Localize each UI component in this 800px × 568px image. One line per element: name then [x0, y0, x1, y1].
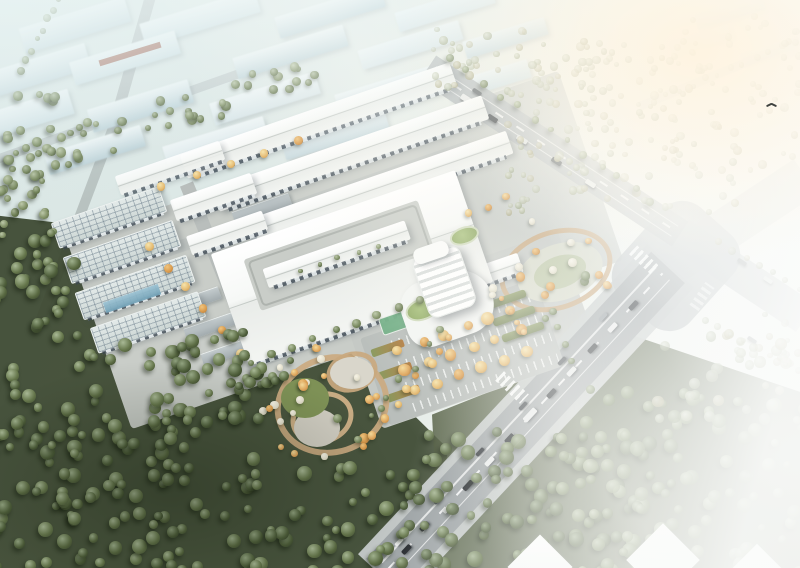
garden-trees [290, 410, 296, 416]
northeast-grove [766, 107, 773, 114]
southeast-forest [630, 441, 645, 456]
southeast-forest [503, 467, 513, 477]
northeast-grove [690, 17, 696, 23]
courtyard-trees [298, 269, 302, 273]
southwest-forest [349, 498, 357, 506]
southeast-forest [569, 532, 583, 546]
garden-trees [321, 453, 327, 459]
northwest-trees [28, 48, 36, 56]
campus-green-trees [395, 303, 404, 312]
southwest-forest [154, 512, 163, 521]
garden-edge-trees [502, 193, 509, 200]
southeast-forest [467, 511, 475, 519]
southeast-forest [591, 445, 604, 458]
boundary-grove [57, 133, 66, 142]
garden-trees [354, 374, 360, 380]
southeast-forest [441, 481, 452, 492]
northeast-grove [532, 185, 540, 193]
southwest-forest [128, 438, 140, 450]
southeast-forest [483, 498, 493, 508]
northeast-grove [625, 138, 633, 146]
southeast-forest [606, 480, 620, 494]
northeast-grove [695, 171, 703, 179]
northeast-grove [682, 29, 689, 36]
cross-road-trees [497, 94, 504, 101]
northeast-grove [607, 119, 614, 126]
parking-tree [464, 321, 474, 331]
avenue-street-trees [436, 326, 443, 333]
northeast-grove [506, 209, 512, 215]
hazy-road-trees [792, 39, 799, 46]
northeast-grove [607, 150, 614, 157]
southwest-forest [6, 443, 14, 451]
northeast-grove [676, 99, 682, 105]
northeast-grove [745, 25, 751, 31]
northeast-grove [587, 85, 595, 93]
northeast-grove [731, 199, 739, 207]
west-grove [46, 125, 55, 134]
southeast-forest [451, 432, 465, 446]
southwest-forest [244, 377, 255, 388]
northeast-grove [685, 84, 693, 92]
east-road-trees [728, 247, 736, 255]
northwest-trees [40, 28, 45, 33]
southeast-forest [525, 478, 538, 491]
northeast-grove [614, 127, 619, 132]
southwest-forest [33, 250, 41, 258]
northeast-grove [432, 72, 440, 80]
southwest-forest [117, 439, 127, 449]
northeast-grove [493, 51, 499, 57]
boundary-grove [32, 137, 42, 147]
southwest-forest [38, 522, 53, 537]
garden-trees [585, 238, 592, 245]
southwest-forest [287, 357, 294, 364]
garden-trees [317, 355, 324, 362]
southeast-forest [701, 515, 712, 526]
southeast-forest [527, 515, 536, 524]
northeast-grove [725, 33, 732, 40]
southeast-forest [421, 549, 432, 560]
southeast-forest [461, 445, 476, 460]
boundary-grove [156, 96, 166, 106]
northwest-trees [56, 0, 61, 2]
northeast-grove [580, 38, 587, 45]
southwest-forest [409, 481, 422, 494]
hedge-autumn-dots [509, 309, 514, 314]
southwest-forest [185, 334, 198, 347]
northeast-grove [596, 40, 603, 47]
southwest-forest [130, 553, 142, 565]
southwest-forest [108, 419, 122, 433]
northeast-grove [780, 103, 789, 112]
northeast-grove [710, 81, 715, 86]
boundary-grove [310, 71, 318, 79]
southeast-forest [681, 411, 692, 422]
southwest-forest [74, 361, 85, 372]
southeast-forest [754, 356, 765, 367]
southeast-forest [580, 416, 593, 429]
southwest-forest [322, 516, 332, 526]
northeast-grove [562, 54, 570, 62]
west-grove [4, 195, 11, 202]
northeast-grove [550, 62, 558, 70]
northeast-grove [651, 113, 659, 121]
southwest-forest [174, 374, 186, 386]
east-grove [766, 333, 773, 340]
boundary-grove [285, 85, 294, 94]
northeast-grove [781, 40, 789, 48]
east-grove [762, 312, 767, 317]
southwest-forest [398, 482, 408, 492]
northeast-grove [751, 13, 758, 20]
boundary-grove [93, 121, 99, 127]
southeast-forest [583, 459, 597, 473]
garden-trees [567, 239, 575, 247]
garden-trees [568, 258, 577, 267]
southwest-forest [151, 558, 163, 568]
northeast-grove [466, 59, 472, 65]
northeast-grove [674, 44, 680, 50]
southeast-forest [783, 461, 792, 470]
northeast-grove [548, 77, 555, 84]
southwest-forest [400, 501, 408, 509]
northwest-trees [17, 67, 25, 75]
northeast-grove [674, 159, 681, 166]
southwest-forest [190, 498, 203, 511]
east-road-trees [702, 317, 709, 324]
southwest-forest [32, 318, 44, 330]
west-grove [13, 91, 22, 100]
southwest-forest [238, 328, 248, 338]
southeast-forest [711, 363, 723, 375]
northeast-grove [505, 172, 512, 179]
southwest-forest [239, 350, 250, 361]
west-grove [39, 210, 49, 220]
northeast-grove [647, 56, 655, 64]
northeast-grove [564, 125, 572, 133]
southwest-forest [67, 257, 81, 271]
northeast-grove [748, 96, 754, 102]
campus-green-trees [372, 311, 380, 319]
parking-edge-trees [549, 308, 556, 315]
parking-tree [454, 369, 464, 379]
southeast-forest [673, 453, 683, 463]
southwest-forest [361, 488, 370, 497]
southeast-forest [793, 416, 800, 424]
northeast-grove [579, 84, 585, 90]
garden-plaza [330, 357, 374, 389]
southwest-forest [192, 561, 204, 568]
southwest-forest [38, 421, 49, 432]
boundary-grove [47, 147, 55, 155]
avenue-street-trees [446, 334, 452, 340]
southeast-forest [491, 475, 500, 484]
southwest-forest [150, 392, 164, 406]
avenue-street-trees [412, 372, 419, 379]
southwest-forest [112, 488, 124, 500]
northeast-grove [650, 91, 659, 100]
northeast-grove [733, 146, 742, 155]
cross-road-trees [646, 198, 654, 206]
southwest-forest [179, 475, 190, 486]
southwest-forest [297, 466, 312, 481]
northeast-grove [792, 28, 800, 36]
northeast-grove [516, 44, 523, 51]
northeast-grove [693, 166, 698, 171]
southeast-forest [685, 391, 695, 401]
southeast-forest [720, 455, 733, 468]
southwest-forest [177, 359, 190, 372]
southeast-forest [775, 338, 787, 350]
northeast-grove [693, 41, 698, 46]
southwest-forest [54, 308, 63, 317]
southwest-forest [164, 432, 177, 445]
northeast-grove [676, 151, 683, 158]
southeast-forest [704, 411, 715, 422]
garden-trees [313, 345, 321, 353]
southeast-forest [510, 515, 524, 529]
northeast-grove [603, 58, 610, 65]
northeast-grove [719, 192, 728, 201]
northeast-grove [439, 36, 447, 44]
west-grove [56, 147, 67, 158]
southwest-forest [250, 367, 261, 378]
boundary-grove [117, 117, 126, 126]
northeast-grove [620, 173, 629, 182]
boundary-grove [270, 68, 278, 76]
northeast-grove [730, 180, 736, 186]
northeast-grove [651, 65, 658, 72]
northeast-grove [618, 93, 624, 99]
campus-autumn-trees [193, 171, 201, 179]
northeast-grove [671, 53, 678, 60]
parking-tree [475, 361, 487, 373]
southwest-forest [420, 521, 429, 530]
northeast-grove [659, 44, 665, 50]
northeast-grove [718, 166, 726, 174]
parking-tree [469, 342, 480, 353]
northeast-grove [729, 158, 737, 166]
northeast-grove [514, 53, 520, 59]
southwest-forest [202, 363, 213, 374]
southwest-forest [279, 371, 289, 381]
southeast-forest [422, 455, 431, 464]
southeast-forest [660, 341, 670, 351]
cross-road-trees [462, 66, 469, 73]
southwest-forest [247, 452, 260, 465]
campus-autumn-trees [260, 149, 269, 158]
southwest-forest [133, 507, 146, 520]
northeast-grove [722, 86, 729, 93]
northeast-grove [584, 44, 590, 50]
southwest-forest [342, 551, 355, 564]
boundary-grove [35, 150, 42, 157]
northeast-grove [504, 121, 512, 129]
southwest-forest [177, 342, 187, 352]
garden-trees [549, 266, 557, 274]
southwest-forest [251, 469, 261, 479]
northeast-grove [661, 155, 667, 161]
southeast-forest [778, 535, 787, 544]
southwest-forest [253, 413, 264, 424]
avenue-street-trees [354, 436, 361, 443]
west-grove [47, 229, 55, 237]
northeast-grove [636, 109, 643, 116]
southwest-forest [103, 480, 115, 492]
southwest-forest [68, 414, 80, 426]
boundary-grove [166, 107, 174, 115]
boundary-grove [114, 127, 121, 134]
southwest-forest [91, 397, 99, 405]
northwest-trees [50, 7, 57, 14]
northeast-grove [555, 74, 561, 80]
southwest-forest [200, 509, 210, 519]
west-grove [3, 134, 12, 143]
warehouse-roof [462, 17, 549, 59]
parking-tree [521, 346, 532, 357]
southwest-forest [407, 469, 420, 482]
southwest-forest [368, 551, 383, 566]
southwest-forest [118, 338, 132, 352]
northeast-grove [541, 42, 546, 47]
campus-green-trees [267, 350, 276, 359]
southwest-forest [163, 393, 173, 403]
southeast-forest [738, 431, 752, 445]
parking-tree [481, 312, 494, 325]
east-grove [781, 319, 789, 327]
southeast-forest [446, 503, 459, 516]
northeast-grove [600, 112, 608, 120]
southwest-forest [324, 540, 337, 553]
southeast-forest [652, 396, 663, 407]
northeast-grove [659, 55, 664, 60]
east-road-trees [782, 277, 788, 283]
southwest-forest [265, 529, 277, 541]
boundary-grove [231, 80, 241, 90]
southwest-forest [201, 416, 213, 428]
southwest-forest [213, 353, 226, 366]
southwest-forest [379, 501, 394, 516]
west-grove [30, 171, 39, 180]
east-road-trees [755, 344, 763, 352]
boundary-grove [219, 99, 227, 107]
southwest-forest [102, 455, 113, 466]
northeast-grove [591, 153, 599, 161]
northeast-grove [521, 172, 527, 178]
southwest-forest [167, 526, 179, 538]
hazy-road-trees [663, 92, 668, 97]
southwest-forest [59, 468, 71, 480]
southeast-forest [572, 509, 585, 522]
southwest-forest [228, 363, 242, 377]
southwest-forest [220, 511, 230, 521]
west-grove [51, 160, 60, 169]
northeast-grove [669, 146, 677, 154]
east-road-trees [741, 338, 746, 343]
southeast-forest [601, 558, 614, 568]
southeast-forest [559, 451, 569, 461]
northeast-grove [708, 109, 715, 116]
west-grove [39, 178, 45, 184]
northeast-grove [450, 41, 455, 46]
southeast-forest [586, 475, 596, 485]
garden-trees [542, 315, 549, 322]
northeast-grove [571, 69, 579, 77]
northeast-grove [622, 152, 627, 157]
bird-wing [771, 103, 777, 107]
northeast-grove [672, 117, 678, 123]
southwest-forest [132, 539, 147, 554]
southwest-forest [183, 415, 192, 424]
northeast-grove [435, 80, 443, 88]
northeast-grove [495, 67, 501, 73]
southeast-forest [424, 430, 434, 440]
southeast-forest [733, 397, 742, 406]
southwest-forest [175, 547, 184, 556]
northeast-grove [759, 90, 767, 98]
northeast-grove [706, 209, 712, 215]
hazy-road-trees [754, 54, 761, 61]
southeast-forest [576, 447, 588, 459]
southwest-forest [177, 565, 187, 568]
west-grove [18, 201, 27, 210]
southwest-forest [57, 534, 72, 549]
northeast-grove [614, 62, 619, 67]
southwest-forest [386, 470, 395, 479]
campus-green-trees [248, 360, 254, 366]
southwest-forest [149, 520, 158, 529]
northeast-grove [524, 197, 530, 203]
northeast-grove [601, 48, 608, 55]
aerial-rendering-canvas [0, 0, 800, 568]
northeast-grove [555, 151, 564, 160]
northeast-grove [527, 175, 534, 182]
southeast-forest [621, 386, 634, 399]
garden-trees [529, 218, 535, 224]
warehouse-roof [86, 79, 193, 133]
northeast-grove [758, 160, 767, 169]
southeast-forest [787, 505, 800, 520]
southwest-forest [148, 469, 161, 482]
garden-trees [277, 364, 283, 370]
southwest-forest [252, 480, 262, 490]
cross-road-trees [548, 127, 553, 132]
southwest-forest [210, 335, 219, 344]
northeast-grove [625, 56, 632, 63]
southwest-forest [26, 285, 40, 299]
southeast-forest [749, 492, 759, 502]
northeast-grove [787, 65, 794, 72]
parking-tree [410, 385, 420, 395]
boundary-grove [26, 153, 35, 162]
northeast-grove [730, 128, 739, 137]
east-road-trees [770, 269, 776, 275]
southwest-forest [413, 494, 424, 505]
northeast-grove [726, 40, 734, 48]
northeast-grove [431, 47, 436, 52]
southwest-forest [367, 514, 378, 525]
east-road-trees [767, 353, 773, 359]
cross-road-trees [514, 101, 521, 108]
northeast-grove [791, 131, 799, 139]
northeast-grove [609, 99, 617, 107]
southwest-forest [56, 492, 69, 505]
southwest-forest [146, 347, 156, 357]
southwest-forest [25, 560, 35, 568]
southeast-forest [602, 508, 613, 519]
northeast-grove [582, 101, 588, 107]
